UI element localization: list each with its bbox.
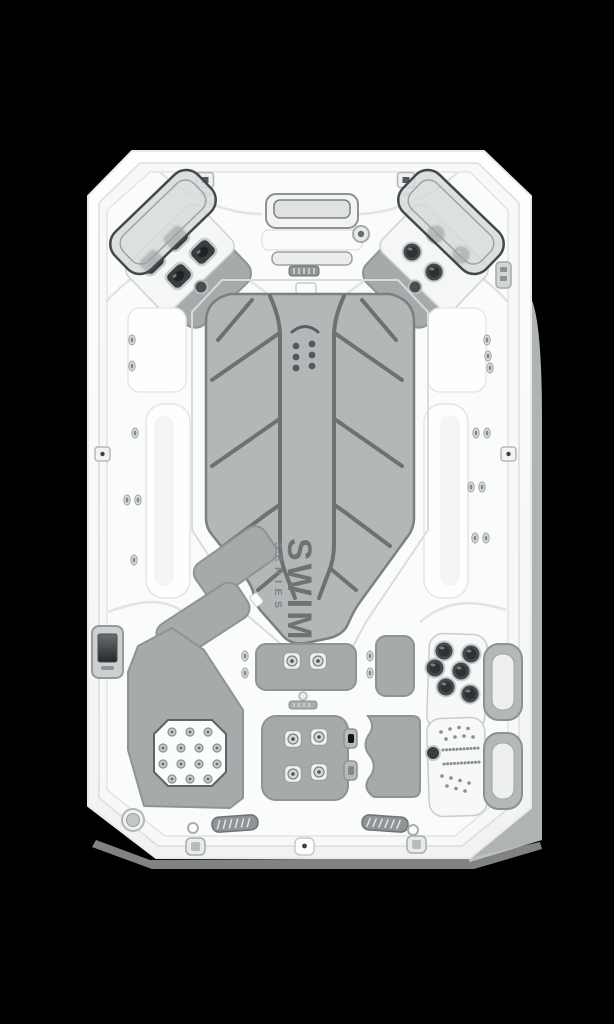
main-control-panel [92, 626, 123, 678]
massage-jet [285, 731, 302, 748]
back-jet-pad-upper [256, 644, 356, 690]
massage-jet [425, 263, 444, 282]
footwell-right [428, 308, 486, 392]
massage-jet [437, 678, 456, 697]
waterfall-ledge [262, 230, 362, 250]
filter-grille-left [211, 814, 258, 832]
suction-fitting-core [191, 842, 200, 851]
jet-panel [426, 717, 487, 817]
massage-jet [461, 685, 480, 704]
swim-spa-render: SWIM SERIES [0, 0, 614, 1024]
control-panel-button [101, 666, 114, 670]
lounger-upper-right [426, 633, 523, 731]
contour-seat-back [366, 716, 421, 797]
suction-fitting-core [412, 840, 421, 849]
center-jet-pads [256, 644, 357, 800]
massage-jet [310, 653, 327, 670]
massage-jet [426, 659, 445, 678]
aux-control-panel [496, 262, 511, 288]
massage-jet [403, 243, 422, 262]
vent-grille-top [289, 266, 319, 276]
control-panel-screen [98, 634, 117, 662]
aux-panel-key [500, 276, 507, 281]
aux-panel-frame [496, 262, 511, 288]
sensor-fitting-right-dot [358, 231, 364, 237]
massage-jet [311, 764, 328, 781]
drain-knob [299, 692, 307, 700]
bench-channel-right-shade [440, 416, 460, 586]
logo-primary-text: SWIM [280, 538, 318, 643]
corner-light-lens [127, 814, 140, 827]
massage-jet [452, 662, 471, 681]
massage-jet [284, 653, 301, 670]
filter-grille-right [362, 814, 409, 832]
bench-channel-left-shade [154, 416, 174, 586]
seat-pad-right-center [376, 636, 414, 696]
vent-grille-center [289, 701, 317, 709]
center-button-dot [302, 844, 307, 849]
grab-handle [484, 733, 522, 809]
lounger-lower-right [426, 717, 522, 817]
side-clip-slot [348, 766, 354, 775]
massage-jet [462, 645, 481, 664]
grab-handle [484, 644, 522, 720]
back-jet-pad-lower [262, 716, 348, 800]
waterfall-lip [272, 252, 352, 265]
product-image-swim-spa-top-view: SWIM SERIES [0, 0, 614, 1024]
small-jet [409, 281, 422, 294]
round-jet [426, 746, 440, 760]
massage-jet [435, 642, 454, 661]
aux-panel-key [500, 267, 507, 272]
footwell-left [128, 308, 186, 392]
side-clip-slot [348, 734, 354, 743]
massage-jet [285, 766, 302, 783]
massage-jet [311, 729, 328, 746]
waterfall-bar-inner [274, 200, 350, 218]
small-jet [195, 281, 208, 294]
